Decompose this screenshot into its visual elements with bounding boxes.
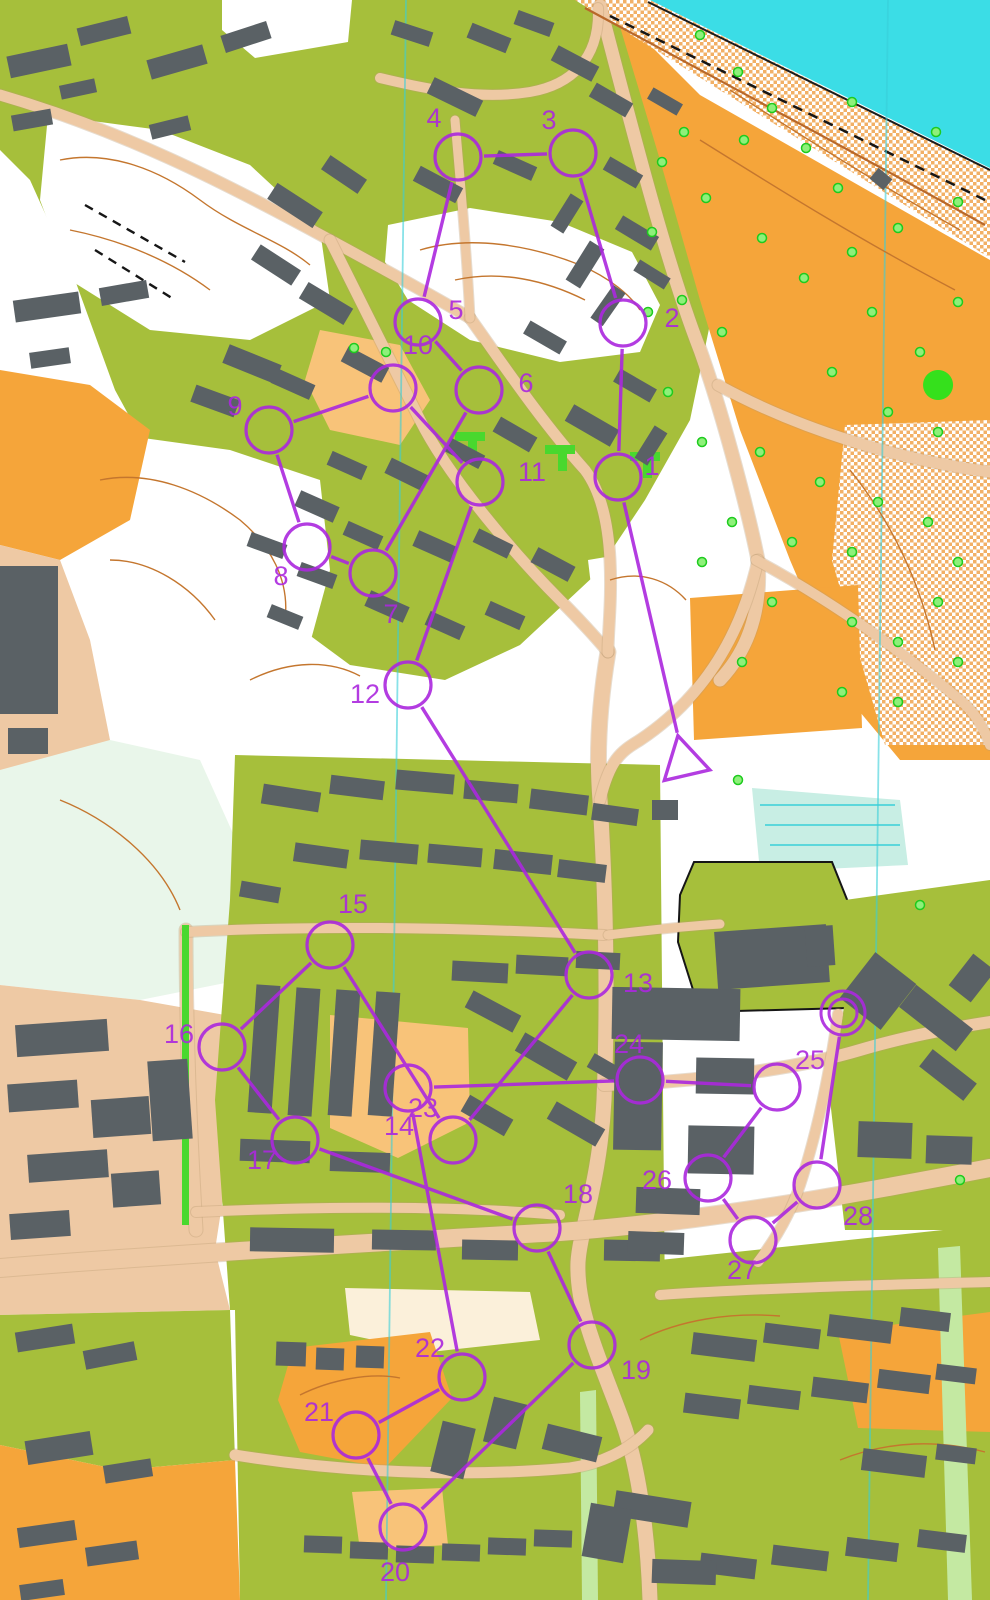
tree-symbol (954, 298, 963, 307)
tree-symbol (382, 348, 391, 357)
tree-symbol (698, 558, 707, 567)
control-number-17: 17 (247, 1145, 277, 1175)
building (250, 1227, 334, 1252)
control-number-10: 10 (403, 330, 433, 360)
control-number-27: 27 (727, 1255, 757, 1285)
tree-symbol (802, 144, 811, 153)
building (442, 1543, 481, 1561)
control-number-26: 26 (642, 1165, 672, 1195)
control-number-18: 18 (563, 1179, 593, 1209)
tree-symbol (728, 518, 737, 527)
control-number-7: 7 (383, 599, 398, 629)
map-canvas: 1234567891011121314151617181920212223242… (0, 0, 990, 1600)
tree-symbol (954, 198, 963, 207)
building (27, 1149, 109, 1183)
tree-symbol (718, 328, 727, 337)
building (696, 1057, 755, 1094)
tree-symbol (788, 538, 797, 547)
tree-symbol (800, 274, 809, 283)
building (111, 1170, 161, 1207)
tree-symbol (894, 224, 903, 233)
tree-symbol (756, 448, 765, 457)
control-number-1: 1 (644, 451, 659, 481)
tree-symbol (868, 308, 877, 317)
tree-symbol (702, 194, 711, 203)
tree-symbol (680, 128, 689, 137)
region-marsh-pale (752, 788, 908, 872)
tree-symbol (954, 658, 963, 667)
building (488, 1537, 527, 1555)
tree-symbol (768, 598, 777, 607)
control-number-9: 9 (227, 391, 242, 421)
building (652, 800, 678, 820)
tree-symbol (956, 1176, 965, 1185)
building (805, 925, 836, 967)
tree-symbol (848, 248, 857, 257)
control-number-5: 5 (448, 295, 463, 325)
orienteering-map: 1234567891011121314151617181920212223242… (0, 0, 990, 1600)
start-triangle (664, 736, 710, 781)
building (857, 1121, 912, 1159)
tree-symbol (740, 136, 749, 145)
tree-symbol (698, 438, 707, 447)
control-number-11: 11 (518, 457, 546, 487)
control-number-4: 4 (426, 103, 441, 133)
control-number-2: 2 (664, 303, 679, 333)
control-number-23: 23 (408, 1093, 438, 1123)
control-number-20: 20 (380, 1557, 410, 1587)
building (8, 728, 48, 754)
building (147, 1059, 192, 1142)
course-leg-3-4 (484, 154, 547, 156)
region-pale-left-zone (0, 740, 245, 1000)
control-number-19: 19 (621, 1355, 651, 1385)
tree-symbol (954, 558, 963, 567)
building (276, 1341, 307, 1366)
building (628, 1231, 685, 1255)
tree-symbol (884, 408, 893, 417)
tree-symbol (874, 498, 883, 507)
control-number-21: 21 (304, 1397, 334, 1427)
building (29, 347, 71, 368)
building (9, 1210, 71, 1240)
building (462, 1240, 518, 1261)
building (304, 1535, 343, 1553)
building (15, 1019, 109, 1057)
tree-symbol (816, 478, 825, 487)
tree-symbol (734, 68, 743, 77)
tree-symbol (848, 98, 857, 107)
building (7, 1080, 79, 1113)
tree-symbol (350, 344, 359, 353)
building (0, 566, 58, 714)
control-number-12: 12 (350, 679, 380, 709)
control-number-13: 13 (623, 968, 653, 998)
control-number-25: 25 (795, 1045, 825, 1075)
region-palegreen-strip-mid (580, 1390, 598, 1600)
tree-symbol (828, 368, 837, 377)
tree-symbol (648, 228, 657, 237)
building (316, 1348, 345, 1371)
building (652, 1559, 717, 1585)
control-number-8: 8 (273, 561, 288, 591)
tree-symbol (894, 698, 903, 707)
tree-symbol (916, 348, 925, 357)
tree-symbol (768, 104, 777, 113)
building (13, 292, 81, 323)
tree-symbol (932, 128, 941, 137)
building (356, 1346, 385, 1369)
control-number-24: 24 (614, 1029, 644, 1059)
control-number-6: 6 (518, 368, 533, 398)
building (516, 955, 569, 977)
tree-symbol (738, 658, 747, 667)
tree-symbol (916, 901, 925, 910)
control-number-16: 16 (164, 1019, 194, 1049)
building (372, 1229, 436, 1250)
tree-symbol (934, 598, 943, 607)
control-number-22: 22 (415, 1333, 445, 1363)
control-number-3: 3 (541, 105, 556, 135)
tree-symbol (934, 428, 943, 437)
tree-symbol (696, 31, 705, 40)
building (534, 1529, 573, 1547)
tree-symbol (838, 688, 847, 697)
tree-symbol (734, 776, 743, 785)
control-number-15: 15 (338, 889, 368, 919)
tree-symbol (758, 234, 767, 243)
building (91, 1096, 152, 1138)
tree-symbol (664, 388, 673, 397)
tree-symbol (658, 158, 667, 167)
tree-symbol (834, 184, 843, 193)
tree-symbol (848, 618, 857, 627)
building (452, 961, 509, 984)
control-number-28: 28 (843, 1201, 873, 1231)
big-green-dot (923, 370, 953, 400)
tree-symbol (894, 638, 903, 647)
tree-symbol (924, 518, 933, 527)
tree-symbol (848, 548, 857, 557)
building (926, 1135, 973, 1165)
